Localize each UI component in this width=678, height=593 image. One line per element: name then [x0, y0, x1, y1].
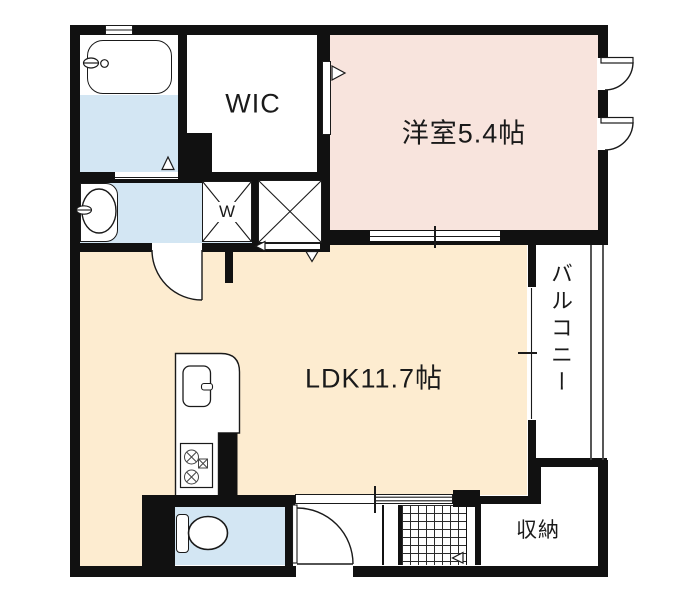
triangle-washer-door	[256, 242, 266, 252]
cross-box-x	[259, 181, 321, 242]
floor-plan: 洋室5.4帖 WIC LDK11.7帖 収納 W バルコニー	[0, 0, 678, 593]
bedroom-window-leaf-1	[601, 58, 633, 64]
washroom-door-fan	[152, 250, 202, 300]
triangle-entrance	[453, 553, 464, 564]
triangle-wic-door	[332, 66, 345, 80]
storage-label: 収納	[516, 514, 560, 544]
bathtub-faucet	[84, 58, 109, 68]
washbasin-faucet	[77, 206, 92, 214]
kitchen-sink-tap	[202, 384, 213, 391]
toilet-bowl	[189, 517, 228, 550]
entrance-door-leaf	[293, 505, 298, 563]
kitchen-counter-wall	[219, 433, 238, 495]
triangle-crossbox-door	[306, 252, 318, 262]
wic-label: WIC	[225, 89, 280, 120]
bedroom-window-arc-1	[605, 62, 633, 90]
triangle-bath-door	[162, 157, 174, 170]
bedroom-window-leaf-2	[601, 118, 633, 124]
washing-machine-label: W	[216, 202, 238, 222]
bedroom-window-arc-2	[605, 122, 633, 150]
balcony-railing	[591, 245, 603, 460]
entrance-door-fan	[297, 508, 353, 564]
balcony-label: バルコニー	[544, 262, 576, 452]
bedroom-label: 洋室5.4帖	[402, 112, 527, 151]
linework-overlay	[0, 0, 678, 593]
ldk-label: LDK11.7帖	[305, 357, 443, 396]
